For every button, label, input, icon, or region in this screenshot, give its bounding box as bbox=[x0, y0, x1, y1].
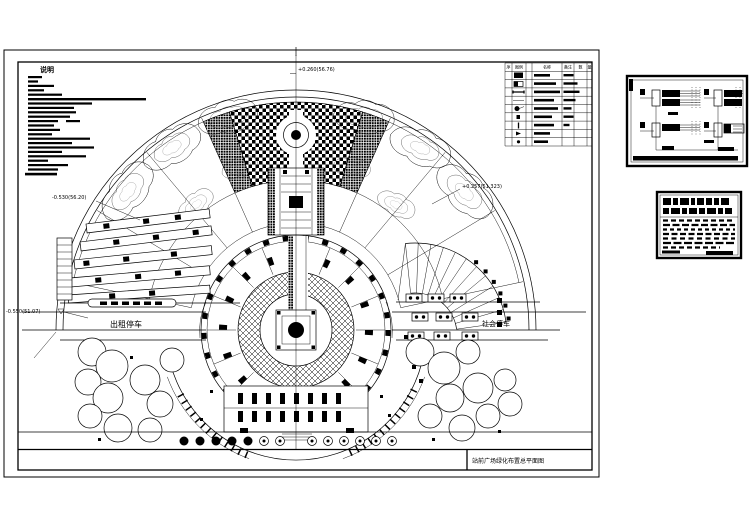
svg-text:序: 序 bbox=[507, 64, 511, 70]
detail-sheet-schedule bbox=[657, 192, 741, 258]
svg-text:数: 数 bbox=[579, 64, 583, 70]
public-parking-label: 社会停车 bbox=[482, 319, 510, 328]
legend-header: 序 图例 名称 备注 数 量 bbox=[507, 64, 592, 70]
notes-text-lines bbox=[25, 76, 146, 175]
taxi-parking-label: 出租停车 bbox=[110, 319, 142, 329]
detail-sheet-electrical bbox=[627, 76, 747, 166]
elevation-top: +0.260(56.76) bbox=[298, 67, 335, 73]
sheet-b-title-bar bbox=[706, 251, 733, 255]
legend-name-bars bbox=[534, 74, 580, 143]
notes-title: 说明 bbox=[40, 65, 54, 74]
svg-text:图例: 图例 bbox=[515, 64, 523, 70]
legend-symbols bbox=[513, 73, 524, 144]
svg-text:备注: 备注 bbox=[564, 64, 572, 70]
svg-text:名称: 名称 bbox=[543, 64, 551, 70]
tree-cluster-left bbox=[75, 338, 184, 442]
cad-screenshot: 说明 序 图例 名称 备注 数 量 bbox=[0, 0, 749, 530]
tree-cluster-right bbox=[406, 338, 522, 441]
roads-left: 出租停车 bbox=[22, 299, 240, 358]
elevation-bottom-left: -0.550(51.07) bbox=[6, 309, 40, 315]
drawing-surface: 说明 序 图例 名称 备注 数 量 bbox=[0, 0, 749, 530]
legend-table: 序 图例 名称 备注 数 量 bbox=[505, 63, 592, 146]
parking-left-edge-stalls bbox=[57, 238, 72, 300]
sheet-a-title-bar bbox=[633, 156, 738, 161]
svg-text:量: 量 bbox=[588, 64, 592, 70]
elevation-right: +0.257(51.323) bbox=[462, 184, 502, 190]
elevation-left: -0.530(56.20) bbox=[52, 195, 86, 201]
drawing-title: 站前广场绿化布置总平面图 bbox=[472, 457, 544, 465]
